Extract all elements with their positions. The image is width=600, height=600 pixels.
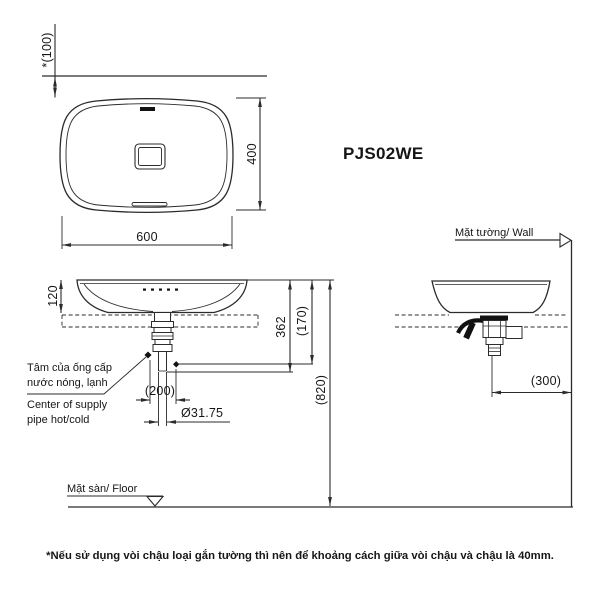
front-dim-200: (200) xyxy=(145,384,175,398)
footnote: *Nếu sử dụng vòi chậu loại gắn tường thì… xyxy=(46,549,554,562)
basin-plan-outline xyxy=(60,99,233,213)
wall-label: Mặt tường/ Wall xyxy=(455,227,533,239)
front-dim-rim-height: 120 xyxy=(46,285,60,306)
front-dim-pipe-diameter: Ø31.75 xyxy=(181,406,223,420)
basin-side-outline xyxy=(432,281,550,313)
wall-level-symbol xyxy=(560,234,571,248)
plan-dim-width: 600 xyxy=(136,230,157,244)
supply-label-en-line1: Center of supply xyxy=(27,399,108,411)
drain-assembly-side xyxy=(458,316,522,356)
front-dim-362: 362 xyxy=(274,316,288,337)
supply-label-vi-line1: Tâm của ống cấp xyxy=(27,362,112,374)
supply-label-vi-line2: nước nóng, lạnh xyxy=(27,377,108,389)
supply-label-en-line2: pipe hot/cold xyxy=(27,414,89,426)
technical-drawing-page: *(100) 600 400 PJS02WE xyxy=(0,0,600,600)
model-title: PJS02WE xyxy=(343,144,424,163)
plan-view xyxy=(42,24,267,249)
plan-dim-height: 400 xyxy=(245,143,259,164)
basin-front-outline xyxy=(77,280,247,313)
side-view xyxy=(395,234,572,508)
side-dim-300: (300) xyxy=(531,374,561,388)
overflow-slot xyxy=(140,107,155,111)
basin-installation-diagram: *(100) 600 400 PJS02WE xyxy=(0,0,600,600)
drain-assembly-front xyxy=(152,313,174,372)
floor-label: Mặt sàn/ Floor xyxy=(67,483,138,495)
front-dim-170: (170) xyxy=(295,306,309,336)
floor-level-symbol xyxy=(147,497,163,507)
front-dim-820: (820) xyxy=(314,375,328,405)
plan-dim-wall-offset: *(100) xyxy=(40,32,54,67)
